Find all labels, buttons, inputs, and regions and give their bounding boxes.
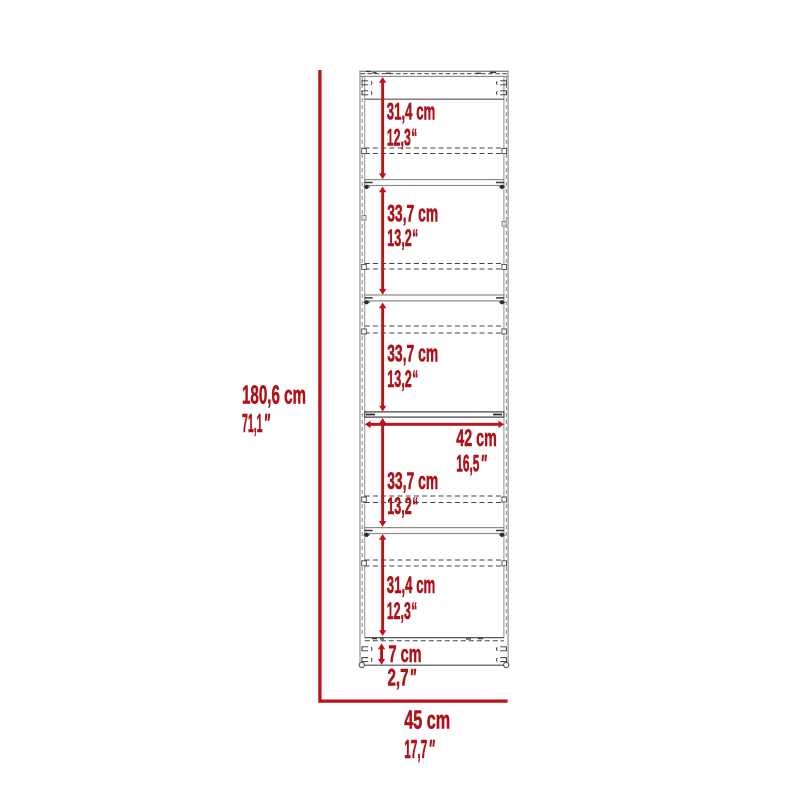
svg-text:33,7 cm: 33,7 cm <box>387 468 438 495</box>
svg-text:2,7: 2,7 <box>388 664 409 691</box>
svg-text:17,7: 17,7 <box>404 734 427 764</box>
svg-text:“: “ <box>412 225 418 252</box>
svg-text:31,4 cm: 31,4 cm <box>387 572 436 599</box>
svg-text:33,7 cm: 33,7 cm <box>387 341 438 368</box>
svg-text:42 cm: 42 cm <box>456 425 497 452</box>
svg-text:33,7 cm: 33,7 cm <box>387 201 438 228</box>
svg-text:13,2: 13,2 <box>387 493 412 520</box>
svg-text:": " <box>410 664 417 691</box>
svg-text:“: “ <box>412 493 418 520</box>
svg-text:": " <box>428 734 435 764</box>
svg-text:": " <box>480 451 487 478</box>
svg-text:16,5: 16,5 <box>456 451 479 478</box>
svg-text:12,3: 12,3 <box>387 125 411 152</box>
svg-text:“: “ <box>412 366 418 393</box>
svg-text:31,4 cm: 31,4 cm <box>387 99 436 126</box>
svg-text:“: “ <box>411 125 417 152</box>
svg-text:“: “ <box>411 598 417 625</box>
svg-text:13,2: 13,2 <box>387 225 412 252</box>
svg-text:45 cm: 45 cm <box>404 705 450 735</box>
svg-text:": " <box>264 408 271 438</box>
svg-text:13,2: 13,2 <box>387 366 412 393</box>
svg-text:180,6 cm: 180,6 cm <box>242 380 306 410</box>
svg-text:12,3: 12,3 <box>387 598 411 625</box>
svg-text:71,1: 71,1 <box>242 408 263 438</box>
